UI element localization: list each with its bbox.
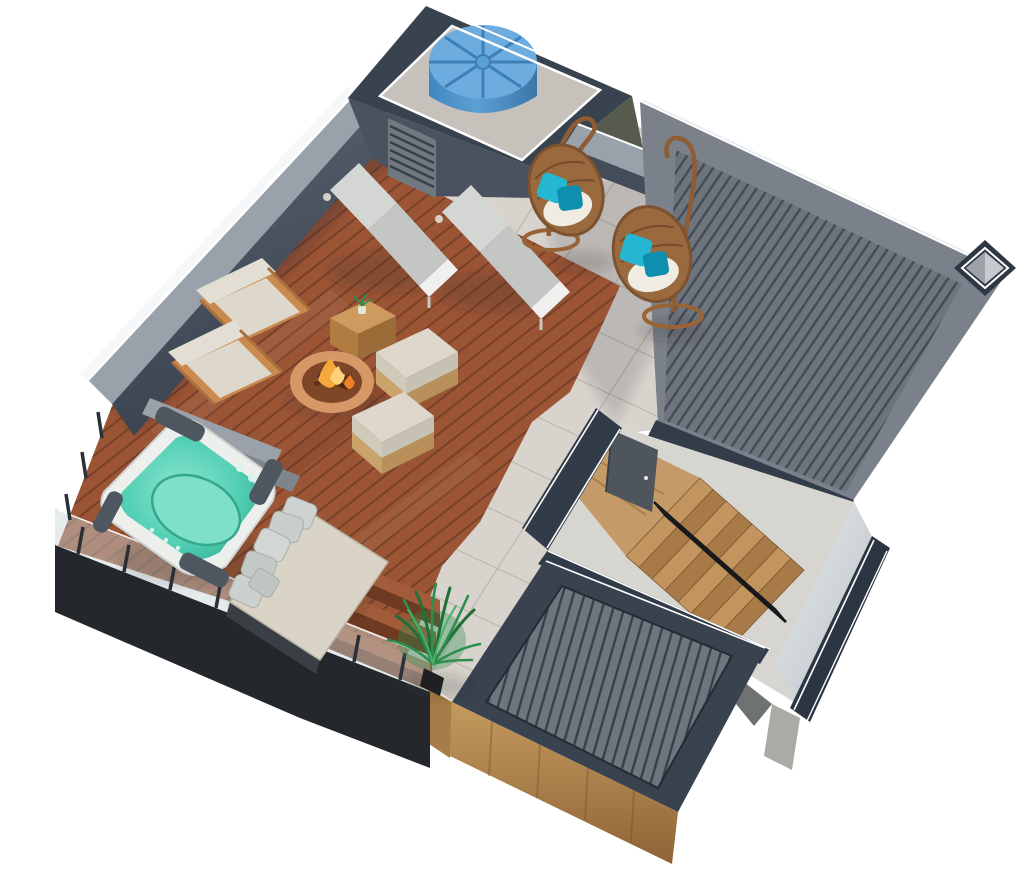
rooftop-terrace-render xyxy=(0,0,1024,870)
fire-pit xyxy=(290,351,374,413)
terrace-scene xyxy=(0,0,1024,870)
